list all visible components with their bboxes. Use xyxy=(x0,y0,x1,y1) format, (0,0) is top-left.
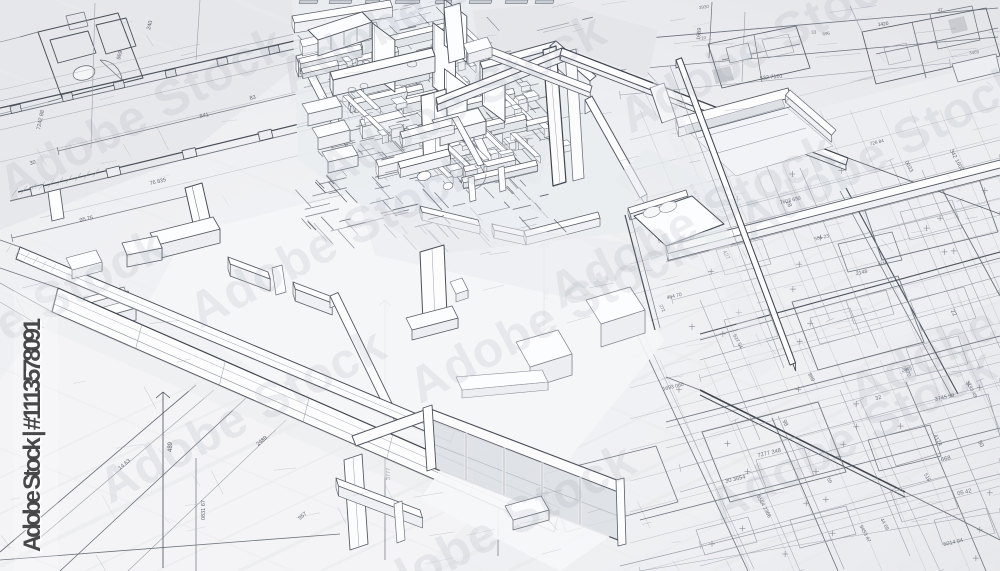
svg-text:Adobe Stock | #1113578091: Adobe Stock | #1113578091 xyxy=(19,318,46,552)
